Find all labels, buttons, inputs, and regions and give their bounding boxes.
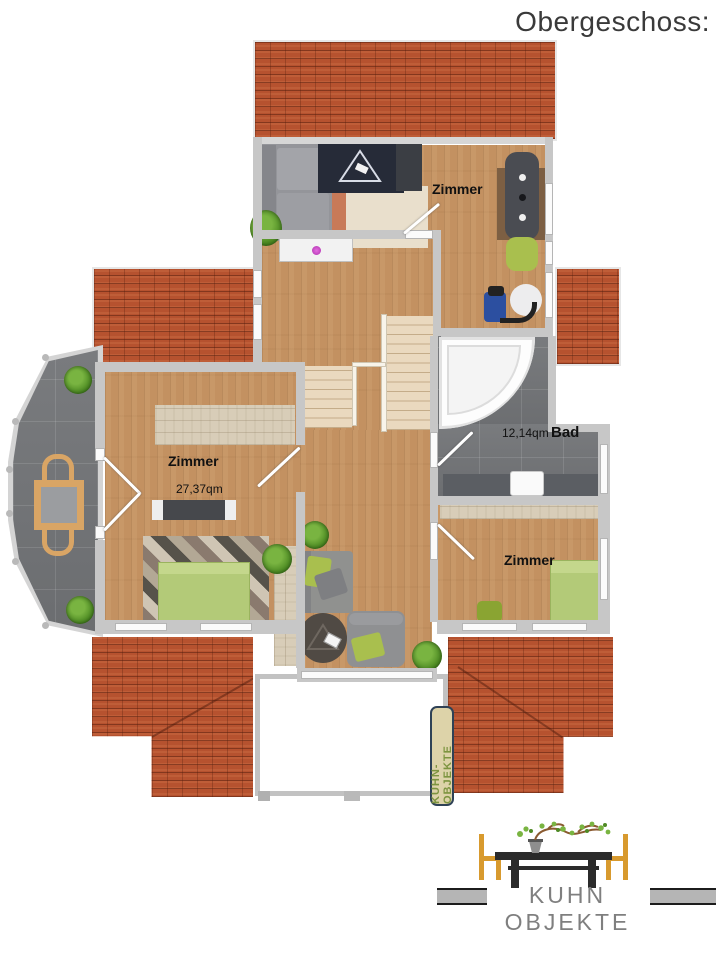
green-pillow — [351, 632, 386, 663]
armchair-back — [349, 613, 403, 625]
floor-plan: Obergeschoss: — [0, 0, 720, 960]
window — [253, 270, 262, 298]
coffee-table-triangle — [338, 149, 382, 183]
bay-chair-top — [42, 454, 74, 480]
brand-tag: KUHN-OBJEKTE — [430, 706, 454, 806]
railing-post — [258, 791, 270, 801]
rug-dark — [318, 141, 404, 193]
window — [532, 623, 587, 631]
speaker — [152, 500, 163, 520]
window — [253, 304, 262, 340]
green-chair — [477, 601, 502, 622]
wall-hall-east-a — [430, 336, 438, 432]
bike-seat — [488, 286, 504, 296]
roof-hip-line — [457, 666, 563, 738]
round-coffee-table — [299, 613, 347, 663]
bay-chair-bottom — [42, 530, 74, 556]
sink — [510, 471, 544, 496]
railing-post — [42, 622, 49, 629]
chair-knob — [519, 194, 526, 201]
bath-area: 12,14qm — [502, 426, 549, 440]
window — [200, 623, 252, 631]
railing-post — [344, 791, 360, 801]
wall-bath-east — [548, 336, 556, 432]
chair-knob — [519, 214, 526, 221]
logo-right-bar — [650, 888, 716, 905]
wardrobe-right-room — [440, 505, 600, 519]
page-title: Obergeschoss: — [420, 6, 710, 38]
door-opening — [405, 230, 433, 239]
flower-icon — [312, 246, 321, 255]
window — [545, 272, 553, 318]
wall-top — [253, 137, 553, 144]
bed-pillow — [551, 561, 601, 573]
window — [462, 623, 517, 631]
tv-lowboard — [152, 500, 236, 520]
wall-hall-east-c — [430, 560, 438, 622]
plant-icon — [64, 366, 92, 394]
wall-room-left-north — [95, 362, 303, 372]
roof-bottom-left — [92, 637, 253, 797]
room-label-left: Zimmer — [168, 453, 219, 469]
wall-divider-b — [296, 492, 305, 668]
wardrobe-left-room — [155, 405, 295, 445]
stairs-lower-flight — [302, 366, 352, 428]
sideboard — [279, 238, 353, 262]
bed-pillow — [159, 563, 249, 574]
roof-top — [253, 40, 557, 141]
roof-left — [92, 267, 257, 366]
plant-icon — [412, 641, 442, 671]
plant-icon — [301, 521, 329, 549]
railing-post — [42, 354, 49, 361]
railing-post — [6, 510, 13, 517]
railing-post — [12, 418, 19, 425]
stairs-railing — [352, 366, 357, 426]
wall-bath-south — [437, 496, 602, 505]
railing-post — [12, 558, 19, 565]
tv-cabinet — [396, 141, 422, 191]
logo-wordmark: KUHN OBJEKTE — [490, 882, 645, 936]
wall-divider-a — [296, 362, 305, 445]
chair-knob — [519, 174, 526, 181]
wall-room-top-south — [253, 230, 405, 239]
window — [115, 623, 167, 631]
stairs-railing — [352, 362, 386, 367]
window — [600, 444, 608, 494]
bed-left — [158, 562, 250, 622]
bay-table — [34, 480, 84, 530]
green-chair — [506, 237, 538, 271]
window — [545, 241, 553, 265]
wall-hall-east-b — [430, 468, 438, 522]
armchair — [347, 611, 405, 667]
roof-hip-line — [152, 675, 259, 738]
stairs-railing — [381, 314, 387, 432]
wall-west-a — [95, 362, 105, 448]
wall-landing-east — [433, 230, 441, 336]
window — [545, 183, 553, 235]
plant-icon — [262, 544, 292, 574]
door-opening — [430, 432, 438, 468]
balcony-glass-door — [301, 671, 433, 679]
door-opening — [430, 522, 438, 560]
wall-west-b — [95, 540, 105, 622]
loveseat — [301, 551, 353, 613]
desk-chair — [505, 152, 539, 240]
logo-left-bar — [437, 888, 487, 905]
window — [600, 538, 608, 600]
room-label-top: Zimmer — [432, 181, 483, 197]
balcony — [255, 674, 448, 796]
roof-right — [555, 267, 621, 366]
bed-right — [550, 560, 602, 622]
bonsai-icon — [517, 822, 610, 853]
plant-icon — [66, 596, 94, 624]
railing-post — [6, 466, 13, 473]
bath-label: Bad — [551, 424, 579, 441]
brand-tag-label: KUHN-OBJEKTE — [430, 708, 454, 804]
roof-bottom-right — [448, 637, 613, 793]
wall-bath-north — [441, 328, 553, 337]
room-area-left: 27,37qm — [176, 482, 223, 496]
speaker — [225, 500, 236, 520]
room-label-right: Zimmer — [504, 552, 555, 568]
